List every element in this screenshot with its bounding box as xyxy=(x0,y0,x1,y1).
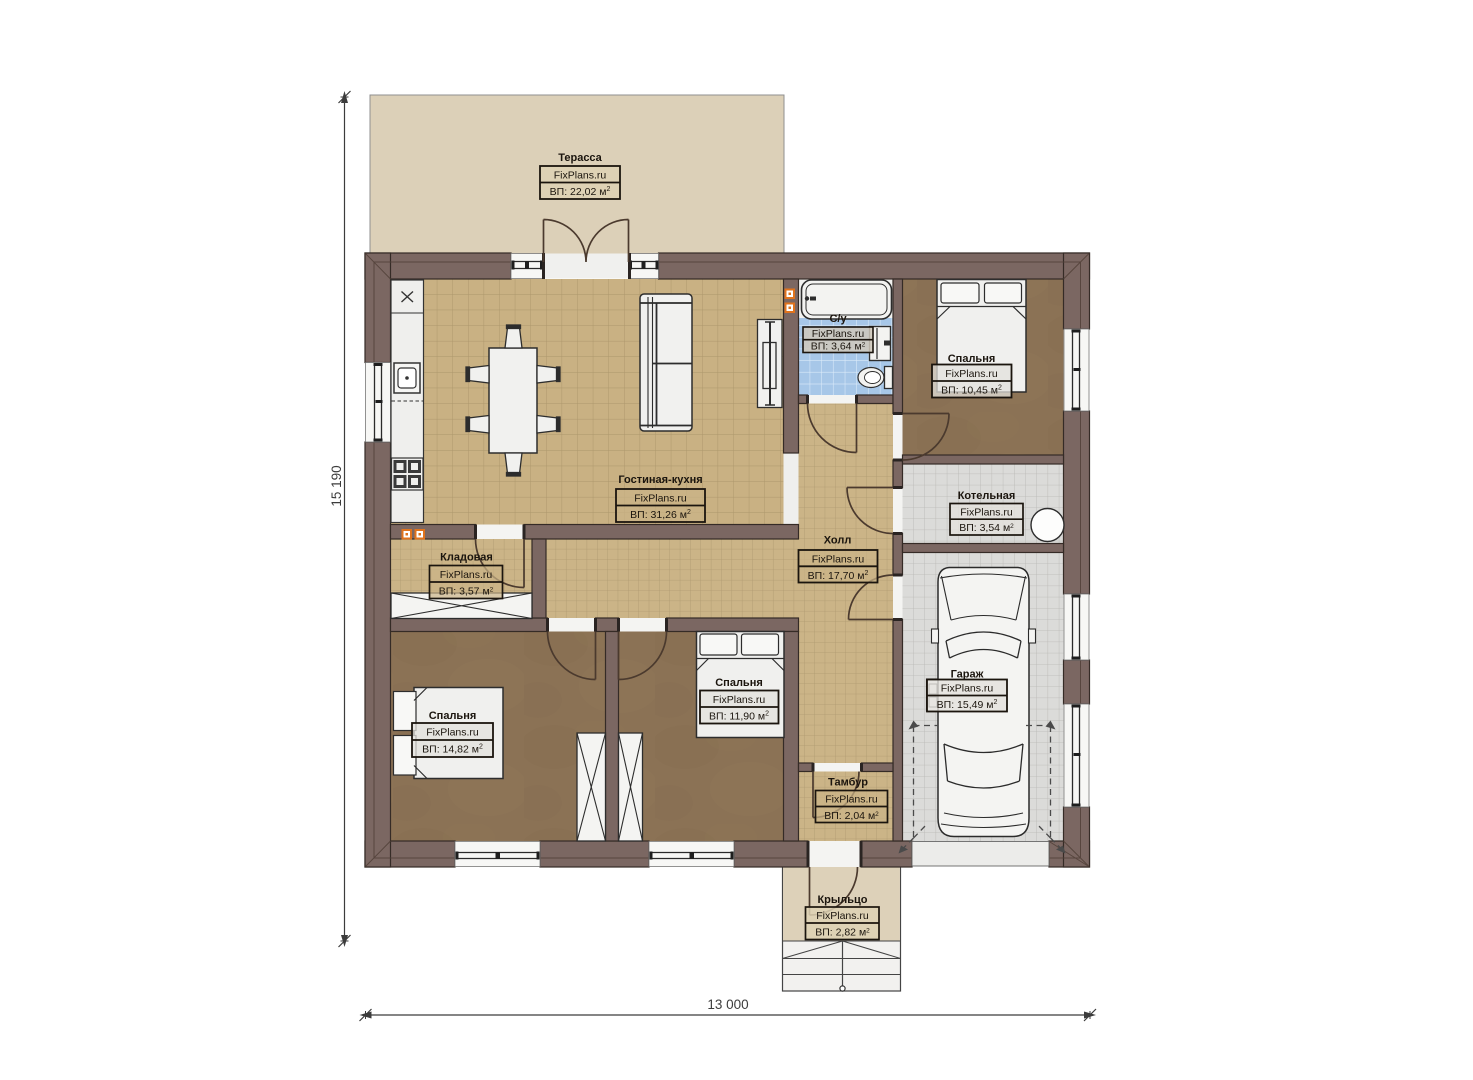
svg-text:Крыльцо: Крыльцо xyxy=(817,894,867,906)
svg-text:ВП: 2,82 м2: ВП: 2,82 м2 xyxy=(815,927,870,939)
svg-text:ВП: 22,02 м2: ВП: 22,02 м2 xyxy=(550,186,611,198)
svg-text:FixPlans.ru: FixPlans.ru xyxy=(440,569,493,581)
svg-text:Гостиная-кухня: Гостиная-кухня xyxy=(618,474,702,486)
svg-text:15 190: 15 190 xyxy=(329,465,344,506)
svg-text:Тамбур: Тамбур xyxy=(828,777,868,789)
svg-text:FixPlans.ru: FixPlans.ru xyxy=(941,683,994,695)
svg-text:Холл: Холл xyxy=(824,535,852,547)
svg-text:FixPlans.ru: FixPlans.ru xyxy=(554,170,607,182)
svg-text:Спальня: Спальня xyxy=(429,710,477,722)
svg-text:FixPlans.ru: FixPlans.ru xyxy=(816,910,869,922)
svg-text:ВП: 10,45 м2: ВП: 10,45 м2 xyxy=(941,385,1002,397)
svg-text:Спальня: Спальня xyxy=(715,677,763,689)
svg-text:FixPlans.ru: FixPlans.ru xyxy=(426,727,479,739)
svg-text:FixPlans.ru: FixPlans.ru xyxy=(960,507,1013,519)
svg-text:Кладовая: Кладовая xyxy=(440,552,493,564)
svg-text:FixPlans.ru: FixPlans.ru xyxy=(825,794,878,806)
svg-text:Спальня: Спальня xyxy=(948,353,996,365)
svg-text:ВП: 3,57 м2: ВП: 3,57 м2 xyxy=(439,585,494,597)
svg-text:FixPlans.ru: FixPlans.ru xyxy=(812,553,865,565)
svg-text:ВП: 14,82 м2: ВП: 14,82 м2 xyxy=(422,744,483,756)
svg-text:FixPlans.ru: FixPlans.ru xyxy=(945,368,998,380)
svg-text:ВП: 3,64 м2: ВП: 3,64 м2 xyxy=(811,341,866,353)
svg-text:ВП: 3,54 м2: ВП: 3,54 м2 xyxy=(959,522,1014,534)
svg-text:FixPlans.ru: FixPlans.ru xyxy=(812,328,865,340)
svg-text:ВП: 2,04 м2: ВП: 2,04 м2 xyxy=(824,810,879,822)
svg-text:С/у: С/у xyxy=(829,313,847,325)
svg-text:FixPlans.ru: FixPlans.ru xyxy=(634,493,687,505)
svg-text:ВП: 31,26 м2: ВП: 31,26 м2 xyxy=(630,509,691,521)
svg-text:ВП: 15,49 м2: ВП: 15,49 м2 xyxy=(937,699,998,711)
svg-text:Котельная: Котельная xyxy=(958,490,1016,502)
svg-text:ВП: 11,90 м2: ВП: 11,90 м2 xyxy=(709,711,769,723)
svg-text:FixPlans.ru: FixPlans.ru xyxy=(713,694,766,706)
svg-text:Терасса: Терасса xyxy=(558,152,602,164)
svg-text:ВП: 17,70 м2: ВП: 17,70 м2 xyxy=(808,570,869,582)
svg-text:13 000: 13 000 xyxy=(707,997,748,1012)
